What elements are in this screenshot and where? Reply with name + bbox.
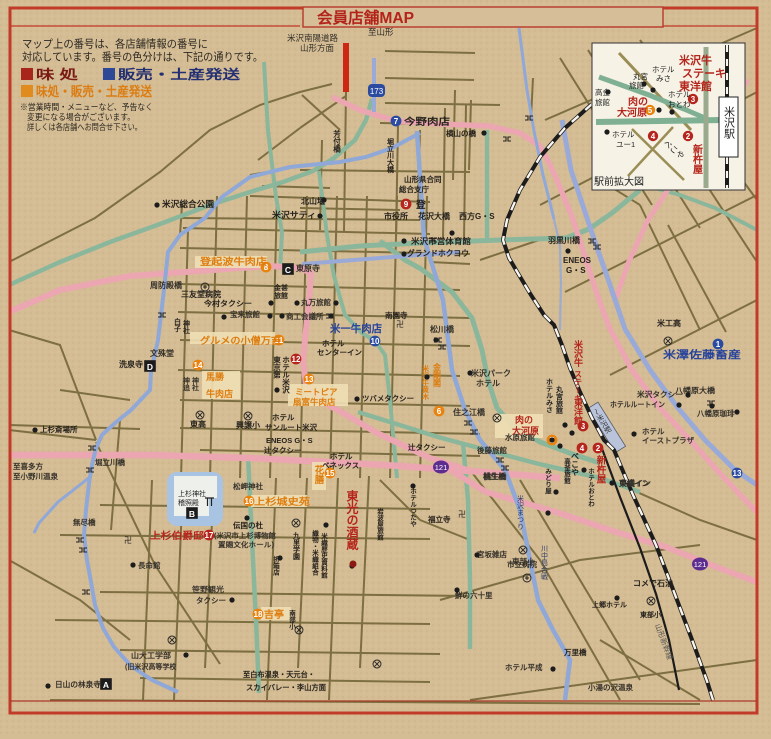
svg-text:長命館: 長命館 [138, 560, 161, 570]
svg-text:金剛閣: 金剛閣 [432, 362, 442, 388]
svg-text:置賜文化ホール): 置賜文化ホール) [218, 540, 274, 549]
svg-text:丸宮: 丸宮 [633, 71, 648, 81]
svg-text:米沢まつり: 米沢まつり [517, 494, 525, 530]
svg-text:辻タクシー: 辻タクシー [408, 442, 446, 452]
svg-text:松川橋: 松川橋 [430, 324, 455, 334]
svg-text:北山堰: 北山堰 [301, 196, 325, 206]
svg-text:金甚: 金甚 [273, 283, 288, 292]
svg-text:東横イン: 東横イン [619, 478, 649, 488]
svg-text:B: B [189, 509, 195, 519]
svg-text:上杉城史苑: 上杉城史苑 [254, 496, 311, 508]
svg-text:至小野川温泉: 至小野川温泉 [13, 471, 58, 481]
svg-text:花沢大橋: 花沢大橋 [418, 211, 451, 221]
svg-text:花膳: 花膳 [313, 464, 325, 485]
svg-text:対応しています。番号の色分けは、下記の通りです。: 対応しています。番号の色分けは、下記の通りです。 [22, 50, 263, 64]
svg-text:商工会議所: 商工会議所 [286, 311, 324, 321]
svg-text:大河原: 大河原 [617, 106, 647, 119]
svg-text:ホテルみさ: ホテルみさ [546, 378, 554, 414]
svg-text:7: 7 [394, 117, 399, 126]
svg-text:駅前拡大図: 駅前拡大図 [594, 175, 644, 188]
svg-text:日山の林泉寺: 日山の林泉寺 [55, 679, 102, 689]
svg-text:16: 16 [245, 497, 254, 506]
svg-text:121: 121 [694, 560, 707, 569]
svg-text:堀立川橋: 堀立川橋 [95, 457, 125, 467]
svg-text:今村タクシー: 今村タクシー [203, 298, 252, 308]
svg-text:ホテル: ホテル [642, 427, 665, 436]
svg-text:べこや: べこや [571, 452, 580, 477]
svg-text:旅館: 旅館 [273, 291, 288, 300]
svg-text:白子: 白子 [174, 317, 182, 333]
svg-text:マップ上の番号は、各店舗情報の番号に: マップ上の番号は、各店舗情報の番号に [22, 37, 208, 51]
svg-text:G・S: G・S [566, 266, 586, 275]
svg-text:肉の: 肉の [628, 95, 648, 108]
svg-text:卍: 卍 [458, 510, 466, 519]
svg-text:芳付橋: 芳付橋 [332, 129, 341, 154]
svg-text:米工高: 米工高 [656, 318, 681, 328]
svg-text:無尽橋: 無尽橋 [73, 517, 96, 527]
svg-text:牛肉店: 牛肉店 [206, 388, 233, 399]
svg-text:東光の酒蔵: 東光の酒蔵 [345, 489, 359, 551]
svg-text:ベネックス: ベネックス [322, 460, 359, 470]
svg-text:米沢南陽道路: 米沢南陽道路 [287, 33, 339, 43]
svg-text:小湯の沢温泉: 小湯の沢温泉 [588, 682, 633, 692]
svg-text:米沢パーク: 米沢パーク [470, 368, 511, 378]
svg-text:ステーキ: ステーキ [682, 67, 726, 80]
svg-text:辻タクシー: 辻タクシー [264, 445, 302, 455]
svg-text:米一牛肉店: 米一牛肉店 [329, 322, 382, 335]
svg-text:万里橋: 万里橋 [563, 647, 587, 657]
svg-text:山形方面: 山形方面 [300, 43, 335, 53]
svg-text:丸万旅館: 丸万旅館 [300, 297, 331, 307]
svg-text:上杉神社: 上杉神社 [178, 489, 206, 498]
svg-text:販売・土産発送: 販売・土産発送 [118, 67, 241, 82]
svg-text:卍: 卍 [124, 536, 132, 545]
svg-text:米沢サティ: 米沢サティ [272, 210, 316, 220]
svg-text:コメで石油: コメで石油 [633, 578, 673, 588]
svg-text:横山の橋: 横山の橋 [446, 128, 476, 138]
svg-text:宮坂雑店: 宮坂雑店 [477, 549, 507, 559]
svg-text:三友堂病院: 三友堂病院 [181, 289, 221, 299]
svg-text:ENEOS G・S: ENEOS G・S [266, 436, 313, 445]
svg-text:上杉斎場所: 上杉斎場所 [40, 424, 78, 434]
svg-text:米沢タクシー: 米沢タクシー [637, 389, 683, 399]
svg-text:※営業時間・メニューなど、予告なく: ※営業時間・メニューなど、予告なく [20, 102, 153, 112]
svg-text:米沢牛: 米沢牛 [573, 339, 584, 368]
svg-text:スカイバレー・李山方面: スカイバレー・李山方面 [246, 682, 326, 692]
svg-text:2: 2 [686, 132, 691, 141]
svg-text:至喜多方: 至喜多方 [13, 461, 43, 471]
svg-text:上杉伯爵邸: 上杉伯爵邸 [150, 530, 205, 542]
svg-text:東京第: 東京第 [272, 355, 281, 380]
svg-text:センターイン: センターイン [317, 347, 362, 357]
svg-text:9: 9 [404, 200, 409, 209]
svg-text:市役所: 市役所 [384, 211, 408, 221]
svg-text:おとわ: おとわ [668, 100, 691, 109]
svg-text:味処・販売・土産発送: 味処・販売・土産発送 [36, 84, 153, 99]
svg-text:東部小: 東部小 [640, 610, 661, 619]
svg-text:新杵屋: 新杵屋 [595, 454, 607, 484]
svg-text:鮮の六十里: 鮮の六十里 [455, 590, 493, 600]
svg-text:ホテル: ホテル [322, 339, 345, 348]
svg-text:ホテル: ホテル [330, 452, 353, 461]
svg-text:米澤佐藤畜産: 米澤佐藤畜産 [662, 348, 741, 361]
svg-text:扇富牛肉店: 扇富牛肉店 [293, 397, 336, 407]
svg-text:ホテル: ホテル [668, 90, 691, 99]
svg-text:1: 1 [716, 340, 721, 349]
svg-text:5: 5 [648, 106, 653, 115]
svg-text:イーストプラザ: イーストプラザ [642, 435, 695, 445]
svg-text:2: 2 [596, 444, 601, 453]
svg-text:福立寺: 福立寺 [427, 514, 451, 524]
svg-text:東洋館: 東洋館 [573, 397, 584, 426]
svg-text:ミートピア: ミートピア [295, 387, 338, 397]
svg-text:4: 4 [580, 444, 585, 453]
svg-text:吉亭: 吉亭 [264, 608, 284, 621]
svg-text:ホテル平成: ホテル平成 [505, 662, 543, 672]
svg-text:山大工学部: 山大工学部 [131, 650, 172, 660]
svg-text:八幡原珈琲: 八幡原珈琲 [696, 408, 735, 418]
svg-text:羽黒川橋: 羽黒川橋 [548, 235, 581, 245]
svg-text:西方G・S: 西方G・S [459, 211, 495, 221]
svg-text:宝来旅館: 宝来旅館 [230, 309, 260, 319]
svg-text:ホテルルートイン: ホテルルートイン [610, 400, 665, 409]
svg-text:15: 15 [326, 469, 335, 478]
svg-text:詳しくは各店舗へお問合せ下さい。: 詳しくは各店舗へお問合せ下さい。 [27, 122, 142, 132]
svg-text:米沢市営体育館: 米沢市営体育館 [410, 236, 471, 246]
svg-text:伝国の杜: 伝国の杜 [233, 520, 263, 530]
svg-text:グランドホクヨウ: グランドホクヨウ [407, 248, 469, 258]
svg-text:ホテル: ホテル [652, 65, 675, 74]
svg-text:笹野観光: 笹野観光 [192, 584, 225, 594]
svg-text:東部小: 東部小 [512, 556, 535, 566]
svg-text:変更になる場合がございます。: 変更になる場合がございます。 [27, 112, 135, 122]
svg-text:4: 4 [651, 132, 656, 141]
svg-text:ホテル: ホテル [476, 379, 500, 388]
svg-text:南園寺: 南園寺 [385, 310, 408, 320]
svg-text:米沢駅: 米沢駅 [723, 106, 736, 140]
svg-text:卍: 卍 [396, 320, 404, 329]
svg-text:米沢牛: 米沢牛 [678, 53, 712, 67]
svg-text:至山形: 至山形 [368, 27, 394, 37]
svg-text:山形県合同: 山形県合同 [404, 174, 442, 184]
svg-text:大河原: 大河原 [512, 425, 539, 436]
svg-text:10: 10 [371, 337, 380, 346]
svg-text:(米沢市上杉博物館: (米沢市上杉博物館 [214, 531, 276, 540]
svg-text:馬勝: 馬勝 [205, 371, 225, 382]
svg-text:旅館: 旅館 [595, 97, 610, 107]
svg-text:新杵屋: 新杵屋 [691, 143, 703, 175]
svg-text:6: 6 [437, 407, 442, 416]
svg-text:ホテル: ホテル [612, 130, 635, 139]
svg-text:松岬神社: 松岬神社 [233, 481, 263, 491]
svg-text:文殊堂: 文殊堂 [150, 348, 174, 358]
svg-text:14: 14 [194, 361, 203, 370]
svg-text:後藤旅館: 後藤旅館 [477, 445, 507, 455]
svg-text:(旧米沢高等学校: (旧米沢高等学校 [125, 662, 177, 671]
svg-text:D: D [147, 362, 153, 372]
svg-text:121: 121 [435, 463, 448, 472]
svg-text:C: C [285, 265, 291, 275]
svg-text:桃生橋: 桃生橋 [484, 471, 507, 481]
svg-text:3: 3 [691, 95, 696, 104]
svg-text:登起波牛肉店: 登起波牛肉店 [199, 256, 268, 268]
svg-text:会員店舗MAP: 会員店舗MAP [317, 8, 414, 27]
svg-text:グルメの小僧万吉: グルメの小僧万吉 [200, 335, 282, 347]
svg-text:東原寺: 東原寺 [296, 263, 320, 273]
svg-text:至白布温泉・天元台・: 至白布温泉・天元台・ [243, 669, 315, 679]
svg-text:みさ: みさ [656, 74, 671, 83]
svg-text:ホテル: ホテル [272, 413, 295, 422]
svg-text:肉の: 肉の [515, 414, 533, 425]
svg-text:サンルート米沢: サンルート米沢 [265, 422, 317, 432]
svg-text:洗泉寺: 洗泉寺 [119, 359, 143, 369]
svg-text:ホテル米沢: ホテル米沢 [281, 356, 290, 395]
svg-text:タクシー: タクシー [196, 595, 226, 605]
svg-text:米沢総合公園: 米沢総合公園 [162, 199, 214, 209]
svg-text:稽照殿: 稽照殿 [178, 498, 199, 507]
svg-text:味 処: 味 処 [36, 67, 79, 82]
svg-text:13: 13 [733, 469, 742, 478]
svg-text:周防殿橋: 周防殿橋 [150, 280, 183, 290]
svg-text:ユー1: ユー1 [616, 140, 635, 149]
svg-text:住之江橋: 住之江橋 [453, 407, 486, 417]
svg-text:18: 18 [254, 610, 263, 619]
svg-text:173: 173 [370, 87, 384, 96]
svg-text:ENEOS: ENEOS [563, 256, 592, 265]
svg-text:総合支庁: 総合支庁 [399, 184, 429, 194]
svg-text:13: 13 [305, 375, 314, 384]
svg-text:17: 17 [205, 531, 214, 540]
svg-text:東高: 東高 [190, 419, 206, 429]
svg-text:川中島合戦: 川中島合戦 [541, 545, 549, 581]
svg-text:ツバメタクシー: ツバメタクシー [362, 393, 414, 403]
svg-text:A: A [103, 680, 109, 690]
svg-text:神追: 神追 [182, 376, 190, 392]
svg-text:上郷ホテル: 上郷ホテル [592, 600, 627, 609]
svg-text:登: 登 [415, 199, 426, 211]
svg-text:興譲小: 興譲小 [236, 420, 260, 430]
svg-text:12: 12 [292, 355, 301, 364]
svg-text:今野肉店: 今野肉店 [403, 116, 451, 128]
